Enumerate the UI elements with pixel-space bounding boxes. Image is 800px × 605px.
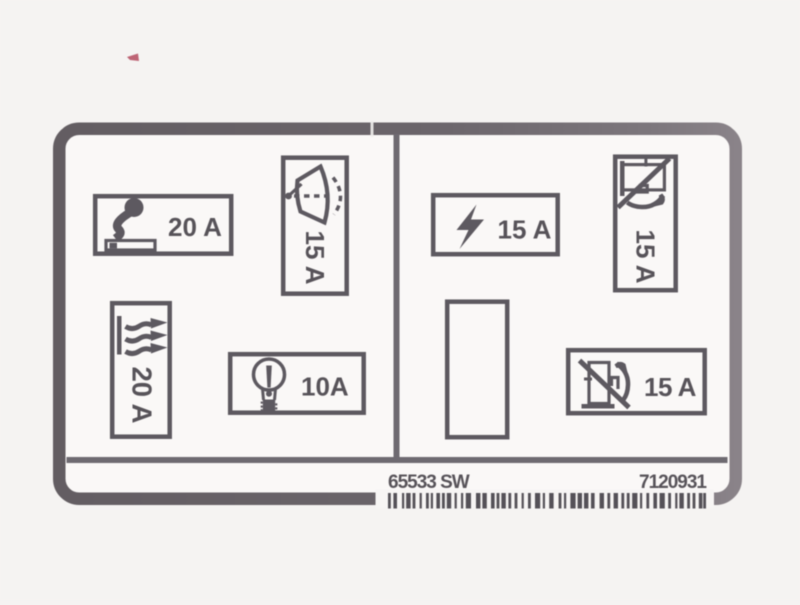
- svg-text:65533 SW: 65533 SW: [388, 472, 470, 493]
- svg-text:20 A: 20 A: [168, 212, 222, 242]
- svg-text:7120931: 7120931: [639, 472, 707, 493]
- svg-text:15 A: 15 A: [631, 230, 661, 284]
- svg-text:15 A: 15 A: [644, 372, 697, 402]
- svg-text:15 A: 15 A: [300, 231, 330, 285]
- svg-text:10A: 10A: [301, 372, 349, 402]
- svg-text:20 A: 20 A: [127, 366, 158, 423]
- svg-text:15 A: 15 A: [498, 215, 552, 245]
